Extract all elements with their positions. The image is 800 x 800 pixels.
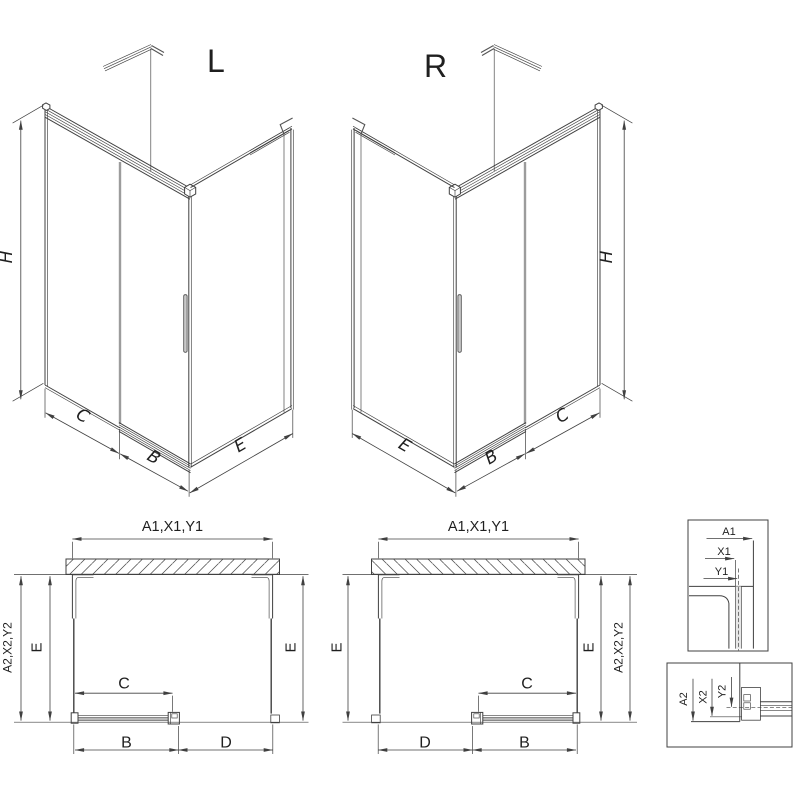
plan-dim-rail-right: B xyxy=(519,735,530,752)
plan-dim-depthL-left: E xyxy=(29,642,46,652)
plan-dim-width-left: A1,X1,Y1 xyxy=(142,519,203,535)
plan-dim-doorglass-right: C xyxy=(521,676,533,693)
detail-wall-dims: A1 X1 Y1 xyxy=(704,526,753,578)
detail-floor-dims: A2 X2 Y2 xyxy=(678,677,732,721)
dim-label-panel-left: C xyxy=(72,405,92,428)
detail-label-a2: A2 xyxy=(678,692,690,705)
dim-label-height-left: H xyxy=(0,250,17,263)
view-title-left: L xyxy=(207,43,225,79)
technical-drawing: L H C B E R H E B C A1,X1,Y1 A2,X2,Y2 E … xyxy=(0,0,800,800)
dim-label-height-right: H xyxy=(597,250,617,263)
iso-view-right: R H E B C xyxy=(352,45,633,497)
plan-dim-doorglass-left: C xyxy=(118,676,130,693)
plan-dim-opening-right: D xyxy=(419,735,431,752)
iso-view-left: L H C B E xyxy=(0,43,293,497)
plan-view-left: A1,X1,Y1 A2,X2,Y2 E E C B D xyxy=(1,519,309,754)
dim-label-side-left: E xyxy=(231,434,251,457)
plan-geometry-left xyxy=(14,539,309,754)
plan-dim-depthR-left: E xyxy=(283,642,300,652)
view-title-right: R xyxy=(424,48,447,84)
plan-dim-depthL-right: E xyxy=(329,642,346,652)
plan-dim-rail-left: B xyxy=(121,735,132,752)
detail-label-x1: X1 xyxy=(717,546,730,558)
dim-label-door-left: B xyxy=(143,446,163,469)
plan-view-right: A1,X1,Y1 E E A2,X2,Y2 C B D xyxy=(329,519,638,754)
dim-label-door-right: B xyxy=(481,446,501,469)
plan-dim-opening-left: D xyxy=(220,735,232,752)
plan-dim-depthR-right: E xyxy=(581,642,598,652)
plan-dim-outer-right: A2,X2,Y2 xyxy=(612,622,626,673)
detail-label-x2: X2 xyxy=(698,690,710,703)
plan-dim-outer-left: A2,X2,Y2 xyxy=(1,622,15,673)
iso-geometry-left xyxy=(13,45,294,497)
detail-label-y1: Y1 xyxy=(715,566,728,578)
plan-dim-width-right: A1,X1,Y1 xyxy=(448,519,509,535)
detail-view-floor: A2 X2 Y2 xyxy=(667,663,792,747)
iso-geometry-right xyxy=(352,45,633,497)
dim-label-side-right: E xyxy=(395,434,415,457)
detail-label-y2: Y2 xyxy=(717,685,729,698)
dim-label-panel-right: C xyxy=(552,404,572,427)
detail-view-wall: A1 X1 Y1 xyxy=(688,520,768,651)
detail-label-a1: A1 xyxy=(722,526,735,538)
